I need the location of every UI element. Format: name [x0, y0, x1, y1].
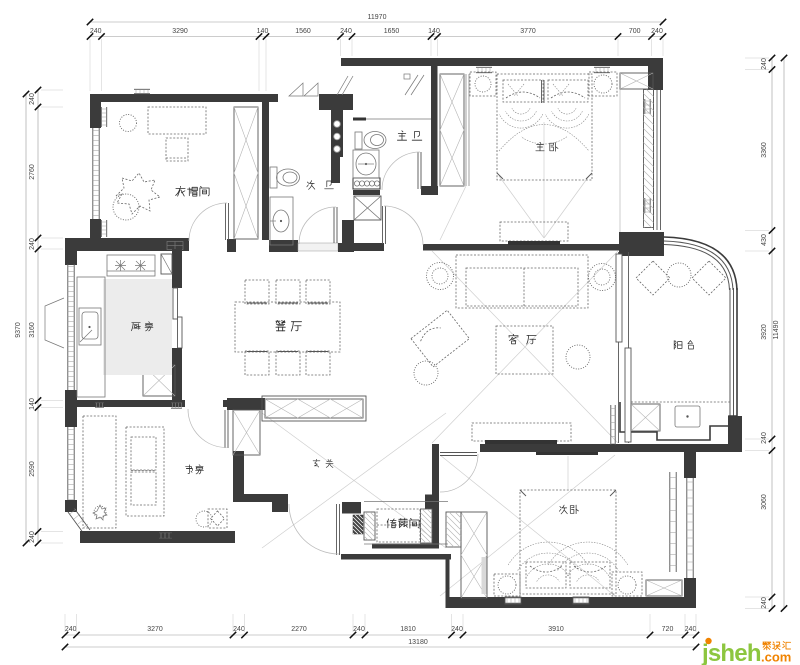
- svg-text:2590: 2590: [29, 461, 36, 477]
- svg-text:1560: 1560: [295, 28, 311, 35]
- svg-text:2760: 2760: [29, 164, 36, 180]
- svg-text:3060: 3060: [761, 494, 768, 510]
- svg-text:240: 240: [65, 626, 77, 633]
- svg-text:2270: 2270: [291, 626, 307, 633]
- svg-text:3770: 3770: [520, 28, 536, 35]
- svg-text:140: 140: [428, 28, 440, 35]
- svg-text:240: 240: [685, 626, 697, 633]
- svg-text:700: 700: [629, 28, 641, 35]
- svg-text:.com: .com: [761, 650, 791, 665]
- svg-text:720: 720: [662, 626, 674, 633]
- svg-text:240: 240: [340, 28, 352, 35]
- svg-text:11490: 11490: [773, 320, 780, 339]
- svg-text:240: 240: [761, 58, 768, 70]
- svg-text:1650: 1650: [384, 28, 400, 35]
- svg-text:140: 140: [257, 28, 269, 35]
- svg-text:240: 240: [651, 28, 663, 35]
- svg-text:3910: 3910: [548, 626, 564, 633]
- svg-text:240: 240: [90, 28, 102, 35]
- svg-text:11970: 11970: [368, 14, 387, 21]
- svg-text:3160: 3160: [29, 322, 36, 338]
- svg-text:240: 240: [451, 626, 463, 633]
- svg-text:3920: 3920: [761, 324, 768, 340]
- svg-text:240: 240: [233, 626, 245, 633]
- svg-text:240: 240: [29, 531, 36, 543]
- svg-text:240: 240: [29, 93, 36, 105]
- svg-text:1810: 1810: [400, 626, 416, 633]
- svg-text:430: 430: [761, 234, 768, 246]
- svg-text:140: 140: [29, 398, 36, 410]
- svg-text:240: 240: [353, 626, 365, 633]
- svg-text:9370: 9370: [15, 322, 22, 338]
- svg-text:3290: 3290: [172, 28, 188, 35]
- svg-text:240: 240: [29, 238, 36, 250]
- svg-text:13180: 13180: [408, 639, 428, 646]
- svg-text:240: 240: [761, 432, 768, 444]
- svg-text:240: 240: [761, 597, 768, 609]
- svg-text:3360: 3360: [761, 142, 768, 158]
- svg-text:3270: 3270: [147, 626, 163, 633]
